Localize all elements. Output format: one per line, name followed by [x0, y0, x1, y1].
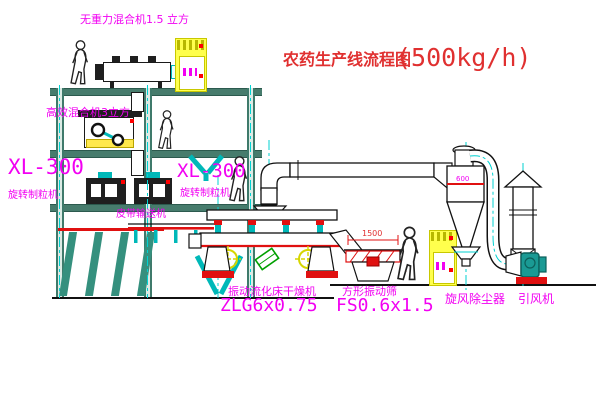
second-mixer-pulleys	[92, 124, 123, 145]
worker-figure	[159, 111, 173, 149]
label-top-mixer: 无重力混合机1.5 立方	[80, 14, 189, 25]
dryer-motor	[255, 248, 278, 269]
label-sieve-model: FS0.6x1.5	[336, 297, 434, 315]
indicator-dot	[449, 236, 453, 240]
label-granulator-left-name: 旋转制粒机	[8, 191, 58, 201]
diagram-title: 农药生产线流程图	[283, 52, 411, 68]
label-cyclone-name: 旋风除尘器	[445, 293, 505, 305]
worker-figure	[71, 41, 87, 84]
label-belt-conveyor: 皮带输送机	[116, 210, 166, 220]
indicator-dot	[166, 180, 170, 184]
dimension-cyclone-marking: 600	[456, 176, 469, 183]
diagram-title-capacity: (500kg/h)	[396, 45, 531, 70]
indicator-dot	[199, 44, 203, 48]
indicator-dot	[130, 119, 134, 123]
label-granulator-right-model: XL-300	[177, 162, 246, 181]
indicator-dot	[449, 268, 453, 272]
indicator-dot	[199, 74, 203, 78]
cabinet-label-marks	[436, 262, 448, 270]
cabinet-label-marks	[183, 68, 197, 76]
worker-figure	[398, 227, 418, 279]
indicator-dot	[121, 180, 125, 184]
label-dryer-model: ZLG6x0.75	[220, 297, 318, 315]
induced-draft-fan	[506, 252, 547, 284]
label-second-mixer: 高效混合机3立方	[46, 107, 130, 118]
flow-diagram-canvas: 无重力混合机1.5 立方 高效混合机3立方 XL-300 旋转制粒机 XL-30…	[0, 0, 600, 403]
exhaust-duct-to-cyclone	[260, 160, 452, 214]
label-granulator-right-name: 旋转制粒机	[180, 189, 230, 199]
label-granulator-left-model: XL-300	[8, 157, 84, 178]
fluid-bed-dryer	[189, 206, 345, 278]
dimension-sieve-width: 1500	[362, 230, 382, 238]
label-fan-name: 引风机	[518, 293, 554, 305]
